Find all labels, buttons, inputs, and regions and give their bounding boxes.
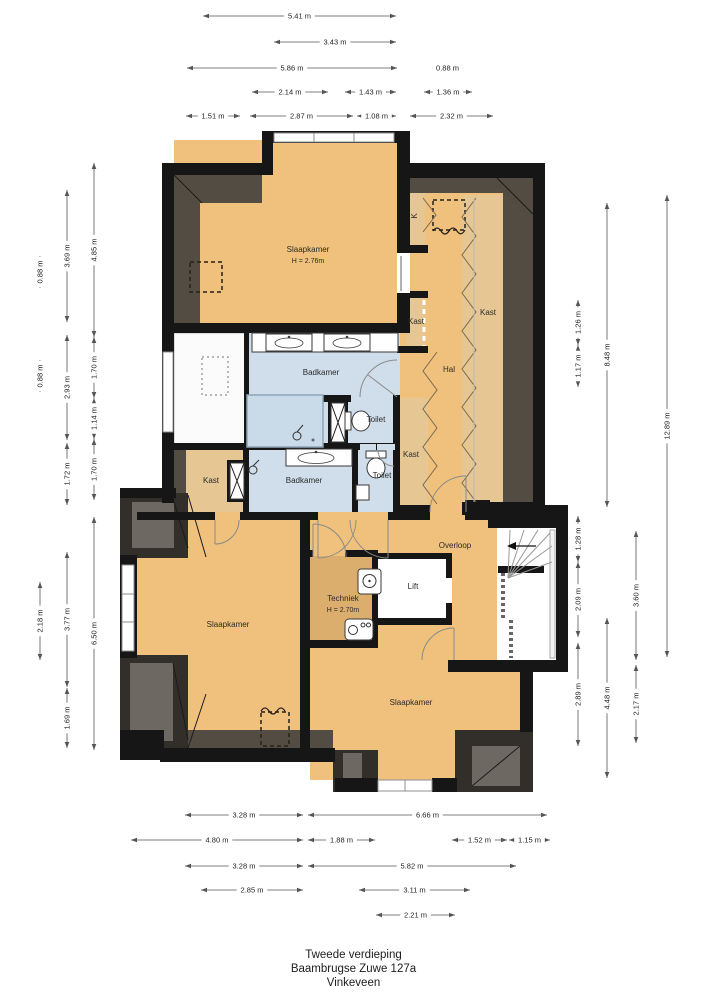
window-top <box>274 133 394 142</box>
dimension: 2.18 m <box>36 582 45 660</box>
dimension: 5.86 m <box>187 64 397 73</box>
room-kast-top: Kast <box>408 317 425 326</box>
svg-text:0.88 m: 0.88 m <box>436 64 459 73</box>
svg-text:1.69 m: 1.69 m <box>63 707 72 730</box>
room-kast-right: Kast <box>480 308 497 317</box>
dimension: 3.69 m <box>63 190 72 322</box>
svg-text:1.70 m: 1.70 m <box>90 458 99 481</box>
svg-text:1.14 m: 1.14 m <box>90 407 99 430</box>
svg-text:1.08 m: 1.08 m <box>365 112 388 121</box>
dimension: 5.82 m <box>308 862 516 871</box>
dimension: 2.21 m <box>376 911 455 920</box>
svg-text:2.93 m: 2.93 m <box>63 376 72 399</box>
dimension: 1.43 m <box>345 88 396 97</box>
svg-text:4.85 m: 4.85 m <box>90 239 99 262</box>
room-kast-links: Kast <box>203 476 220 485</box>
dimension: 2.14 m <box>252 88 328 97</box>
dimension: 1.69 m <box>63 688 72 748</box>
dimension: 3.43 m <box>274 38 396 47</box>
dimension: 3.77 m <box>63 552 72 687</box>
dimension: 2.93 m <box>63 335 72 440</box>
svg-text:1.28 m: 1.28 m <box>574 528 583 551</box>
dimension: 1.28 m <box>574 516 583 562</box>
room-slaapkamer-topleft: Slaapkamer <box>287 245 330 254</box>
dimension: 5.41 m <box>203 12 396 21</box>
room-slaapkamer-bottomright: Slaapkamer <box>390 698 433 707</box>
dimension: 1.51 m <box>186 112 240 121</box>
window-left-low <box>122 565 134 651</box>
dimension: 1.08 m <box>357 112 396 121</box>
svg-text:3.77 m: 3.77 m <box>63 608 72 631</box>
door-opening-toilet-onder <box>360 444 376 450</box>
svg-text:1.88 m: 1.88 m <box>330 836 353 845</box>
svg-text:1.52 m: 1.52 m <box>468 836 491 845</box>
room-techniek-height: H = 2.70m <box>327 607 360 614</box>
dimension: 1.36 m <box>424 88 472 97</box>
svg-text:2.32 m: 2.32 m <box>440 112 463 121</box>
floorplan-svg: SlaapkamerH = 2.76mHalKastKastKBadkamerT… <box>0 0 707 1000</box>
dimension: 2.89 m <box>574 643 583 746</box>
dimension: 3.28 m <box>185 811 303 820</box>
svg-text:3.60 m: 3.60 m <box>632 584 641 607</box>
window-left-mid <box>163 352 173 432</box>
room-toilet-onder: Toilet <box>373 471 392 480</box>
dimension: 1.72 m <box>63 443 72 505</box>
room-badkamer-boven: Badkamer <box>303 368 340 377</box>
dimension: 6.50 m <box>90 517 99 750</box>
vanity-double-sink <box>252 333 398 352</box>
dimension: 1.88 m <box>308 836 375 845</box>
svg-text:4.80 m: 4.80 m <box>206 836 229 845</box>
svg-text:5.41 m: 5.41 m <box>288 12 311 21</box>
room-kast-mid: Kast <box>403 450 420 459</box>
roof-zone <box>174 333 246 445</box>
svg-text:3.11 m: 3.11 m <box>403 886 425 895</box>
dimension: 0.88 m <box>36 256 45 288</box>
door-opening-toilet-boven <box>377 444 395 450</box>
svg-text:12.89 m: 12.89 m <box>663 412 672 439</box>
dimension: 1.70 m <box>90 439 99 500</box>
dimension: 2.85 m <box>201 886 303 895</box>
room-hal: Hal <box>443 365 455 374</box>
window-stairwell <box>550 530 555 658</box>
dimension: 4.80 m <box>131 836 303 845</box>
floor-overloop-corridor <box>448 560 497 660</box>
svg-text:2.89 m: 2.89 m <box>574 683 583 706</box>
dimension: 1.17 m <box>574 345 583 387</box>
title-block: Tweede verdieping Baambrugse Zuwe 127a V… <box>0 948 707 990</box>
dimension: 2.09 m <box>574 562 583 637</box>
room-overloop: Overloop <box>439 541 472 550</box>
room-toilet-boven: Toilet <box>367 415 386 424</box>
svg-text:1.70 m: 1.70 m <box>90 356 99 379</box>
svg-text:5.86 m: 5.86 m <box>281 64 304 73</box>
svg-text:1.51 m: 1.51 m <box>202 112 225 121</box>
boiler-icon <box>358 569 381 594</box>
dimension: 12.89 m <box>663 195 672 657</box>
dimension: 3.11 m <box>359 886 470 895</box>
svg-text:6.50 m: 6.50 m <box>90 622 99 645</box>
svg-text:8.48 m: 8.48 m <box>603 344 612 367</box>
sink-onder <box>286 449 352 466</box>
dimension: 1.15 m <box>509 836 550 845</box>
svg-text:2.21 m: 2.21 m <box>404 911 427 920</box>
room-badkamer-onder: Badkamer <box>286 476 323 485</box>
room-techniek: Techniek <box>327 594 360 603</box>
shower-boven <box>247 395 323 447</box>
svg-text:5.82 m: 5.82 m <box>401 862 424 871</box>
dimension: 0.88 m <box>36 360 45 392</box>
dimension: 2.87 m <box>250 112 353 121</box>
svg-text:1.17 m: 1.17 m <box>574 355 583 378</box>
dimension: 1.52 m <box>452 836 507 845</box>
dimension: 1.14 m <box>90 398 99 439</box>
svg-text:2.85 m: 2.85 m <box>241 886 264 895</box>
svg-text:1.15 m: 1.15 m <box>518 836 541 845</box>
address: Baambrugse Zuwe 127a <box>0 962 707 976</box>
svg-text:0.88 m: 0.88 m <box>36 261 45 284</box>
floor-title: Tweede verdieping <box>0 948 707 962</box>
dimension: 8.48 m <box>603 203 612 507</box>
svg-text:1.26 m: 1.26 m <box>574 311 583 334</box>
svg-text:2.09 m: 2.09 m <box>574 588 583 611</box>
svg-text:3.69 m: 3.69 m <box>63 245 72 268</box>
floor-stairs <box>497 528 553 660</box>
city: Vinkeveen <box>0 976 707 990</box>
dimension: 1.26 m <box>574 300 583 345</box>
svg-text:3.28 m: 3.28 m <box>233 862 256 871</box>
svg-text:1.43 m: 1.43 m <box>359 88 382 97</box>
dimension: 2.17 m <box>632 665 641 743</box>
svg-text:1.36 m: 1.36 m <box>437 88 460 97</box>
floorplan-page: SlaapkamerH = 2.76mHalKastKastKBadkamerT… <box>0 0 707 1000</box>
svg-text:2.14 m: 2.14 m <box>279 88 302 97</box>
svg-text:2.18 m: 2.18 m <box>36 610 45 633</box>
svg-text:2.17 m: 2.17 m <box>632 693 641 716</box>
dimension: 1.70 m <box>90 337 99 398</box>
door-opening-slaapkamer-hal <box>397 253 410 293</box>
dimension: 3.28 m <box>185 862 303 871</box>
dimension: 3.60 m <box>632 531 641 660</box>
washer-icon <box>345 619 373 640</box>
door-opening-lift <box>446 578 452 603</box>
svg-text:3.43 m: 3.43 m <box>324 38 347 47</box>
svg-text:4.48 m: 4.48 m <box>603 687 612 710</box>
room-slaapkamer-bottomleft: Slaapkamer <box>207 620 250 629</box>
room-k-closet: K <box>410 213 419 219</box>
dimension: 2.32 m <box>410 112 493 121</box>
room-lift: Lift <box>408 582 419 591</box>
dimension: 6.66 m <box>308 811 547 820</box>
svg-text:0.88 m: 0.88 m <box>36 365 45 388</box>
dimension: 4.85 m <box>90 163 99 337</box>
dimension: 4.48 m <box>603 618 612 778</box>
room-slaapkamer-topleft-height: H = 2.76m <box>292 258 325 265</box>
svg-text:6.66 m: 6.66 m <box>416 811 439 820</box>
svg-text:2.87 m: 2.87 m <box>290 112 313 121</box>
dimension: 0.88 m <box>432 64 463 73</box>
svg-text:3.28 m: 3.28 m <box>233 811 256 820</box>
svg-text:1.72 m: 1.72 m <box>63 463 72 486</box>
